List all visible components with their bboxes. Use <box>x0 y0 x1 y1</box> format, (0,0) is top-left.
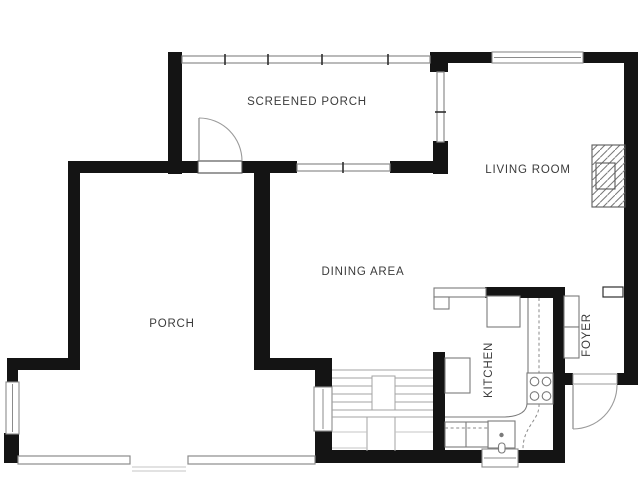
door-swing-arc <box>573 385 617 429</box>
foyer-entry-door <box>573 374 617 429</box>
staircase <box>332 370 433 451</box>
refrigerator <box>487 296 520 327</box>
screen-wall-bottom-east <box>188 456 315 464</box>
wall-west-band <box>68 161 198 173</box>
stair-landing <box>372 376 395 410</box>
wall-foyer-bottom-left <box>565 373 573 385</box>
label-porch: PORCH <box>149 318 195 330</box>
label-foyer: FOYER <box>581 313 593 357</box>
foyer-closet-upper <box>564 296 579 327</box>
pass-through-counter-end <box>434 297 449 309</box>
fireplace <box>592 145 625 207</box>
counter-edge-curve <box>445 404 527 417</box>
wall-porch-left <box>68 161 80 370</box>
room-labels: SCREENED PORCH LIVING ROOM DINING AREA P… <box>149 96 593 398</box>
screen-wall-top <box>182 56 430 63</box>
foyer-fixtures <box>564 287 623 358</box>
wall-screened-porch-left <box>168 52 182 174</box>
wall-strip-sw-corner <box>4 433 19 463</box>
label-kitchen: KITCHEN <box>483 342 495 398</box>
wall-opening-stub <box>603 287 623 297</box>
pass-through-counter <box>434 288 486 297</box>
screen-wall-right <box>437 72 444 142</box>
label-dining-area: DINING AREA <box>322 266 405 278</box>
wall-sp-ne-corner <box>430 52 448 72</box>
kitchen-cabinet <box>445 358 470 393</box>
wall-kitchen-left <box>433 352 445 463</box>
wall-bottom <box>315 450 565 463</box>
fireplace-hearth <box>592 145 625 207</box>
upper-cabinet-dashed-curve <box>523 404 539 449</box>
wall-kitchen-right <box>553 287 565 463</box>
stove <box>527 373 553 404</box>
wall-right <box>624 52 638 385</box>
floor-plan-image: SCREENED PORCH LIVING ROOM DINING AREA P… <box>0 0 640 480</box>
door-swing-arc <box>199 118 242 161</box>
floor-plan-drawing: SCREENED PORCH LIVING ROOM DINING AREA P… <box>0 0 640 480</box>
wall-foyer-bottom-right <box>617 373 638 385</box>
wall-porch-stairs-link <box>254 358 332 370</box>
wall-livingroom-top-left <box>448 52 492 63</box>
label-screened-porch: SCREENED PORCH <box>247 96 367 108</box>
screen-wall-bottom-west <box>18 456 130 464</box>
wall-porch-right <box>254 161 270 370</box>
sink <box>488 421 515 453</box>
screened-porch-door <box>198 118 242 173</box>
label-living-room: LIVING ROOM <box>485 164 570 176</box>
wall-sp-se-corner <box>433 141 448 174</box>
windows <box>6 52 583 467</box>
foyer-closet-lower <box>564 327 579 358</box>
